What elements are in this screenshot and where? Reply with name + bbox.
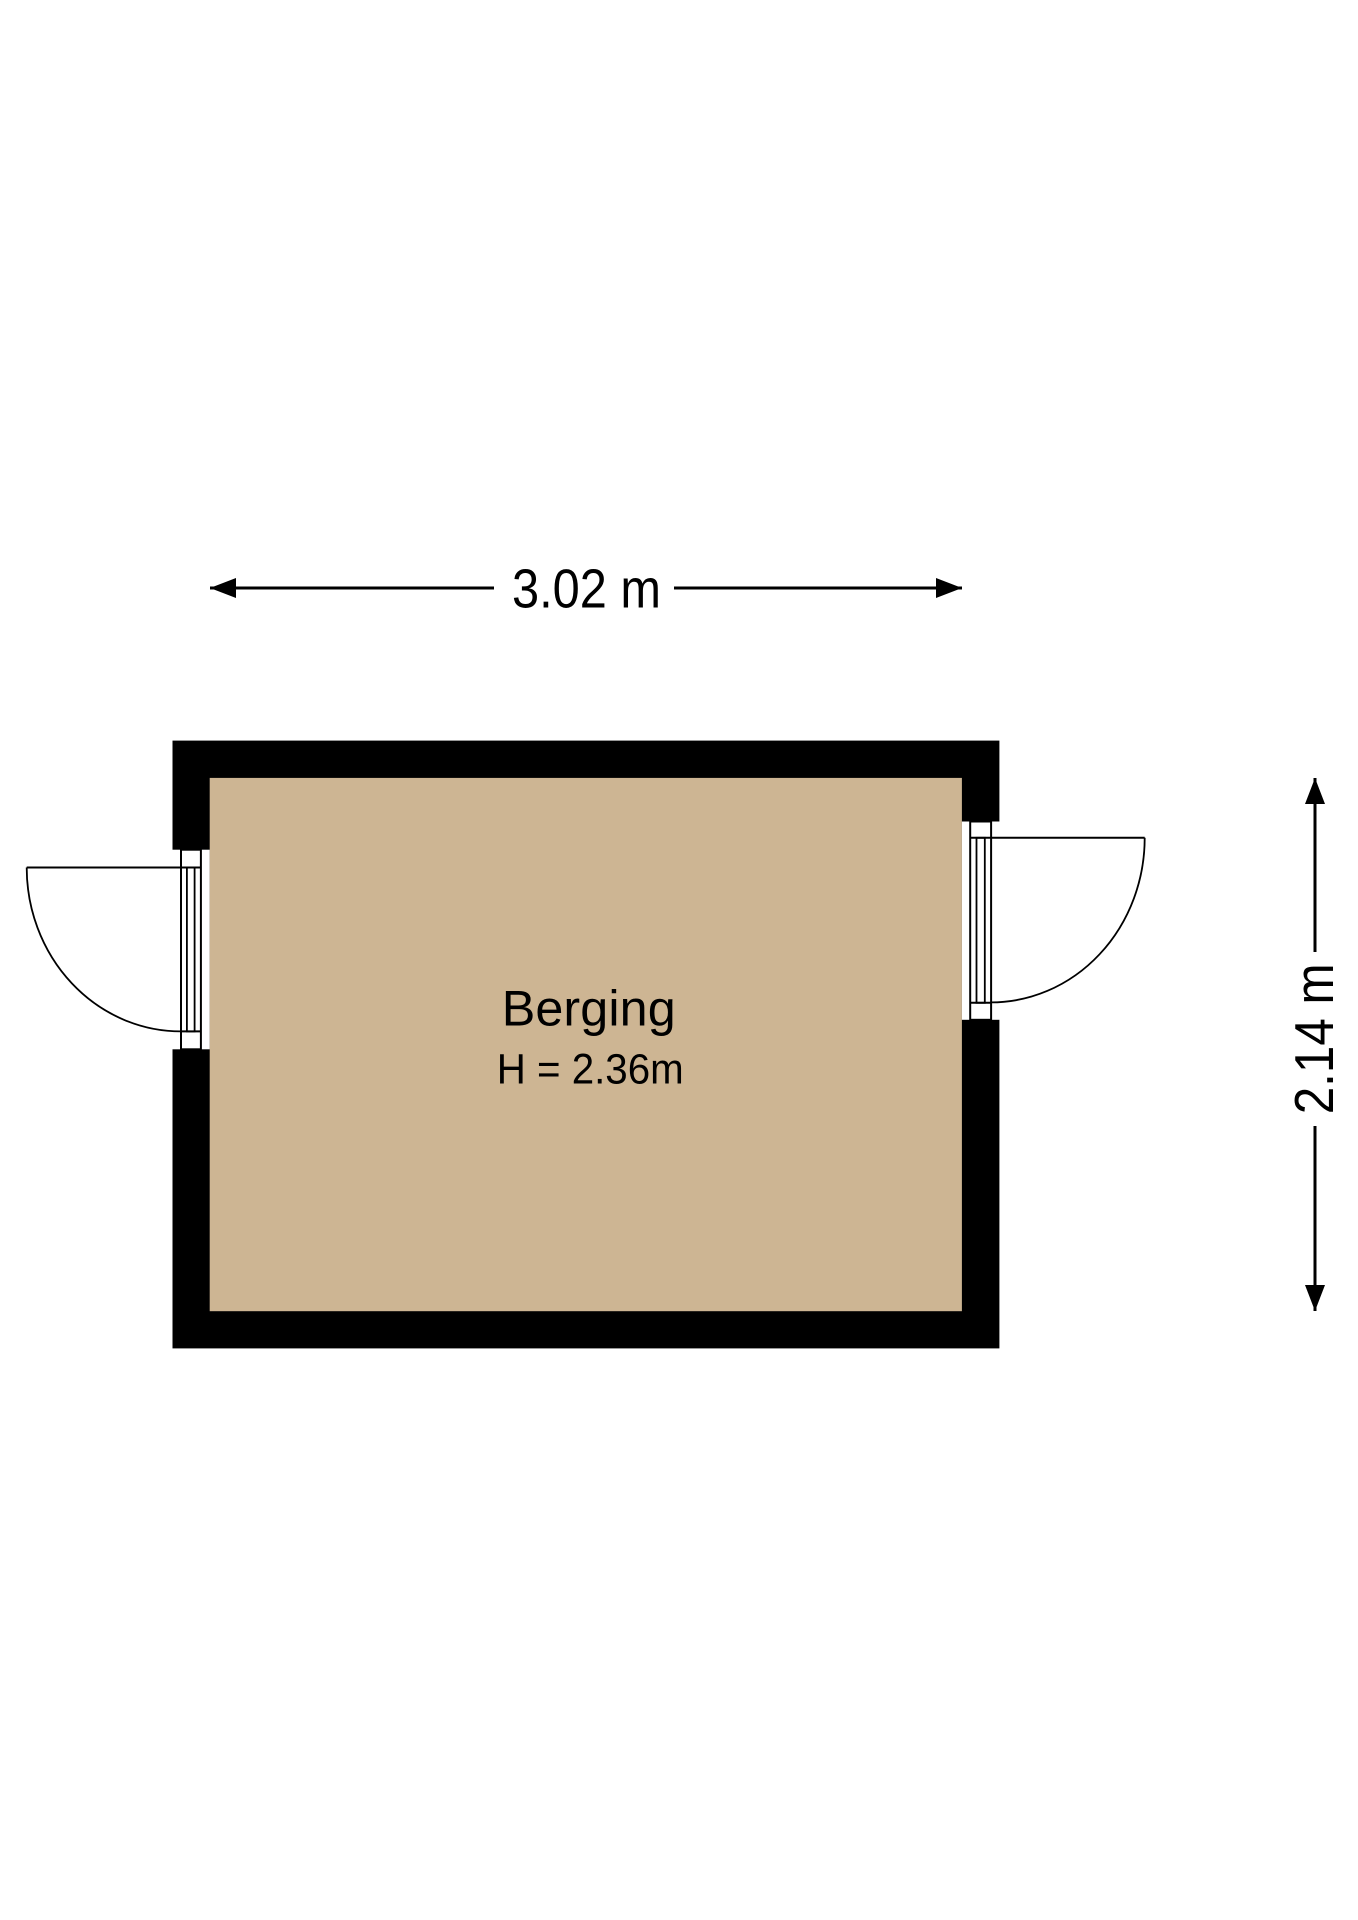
svg-text:H = 2.36m: H = 2.36m [497, 1046, 684, 1094]
svg-text:3.02 m: 3.02 m [512, 558, 661, 620]
svg-text:2.14 m: 2.14 m [1283, 963, 1345, 1114]
svg-text:Berging: Berging [502, 980, 676, 1037]
